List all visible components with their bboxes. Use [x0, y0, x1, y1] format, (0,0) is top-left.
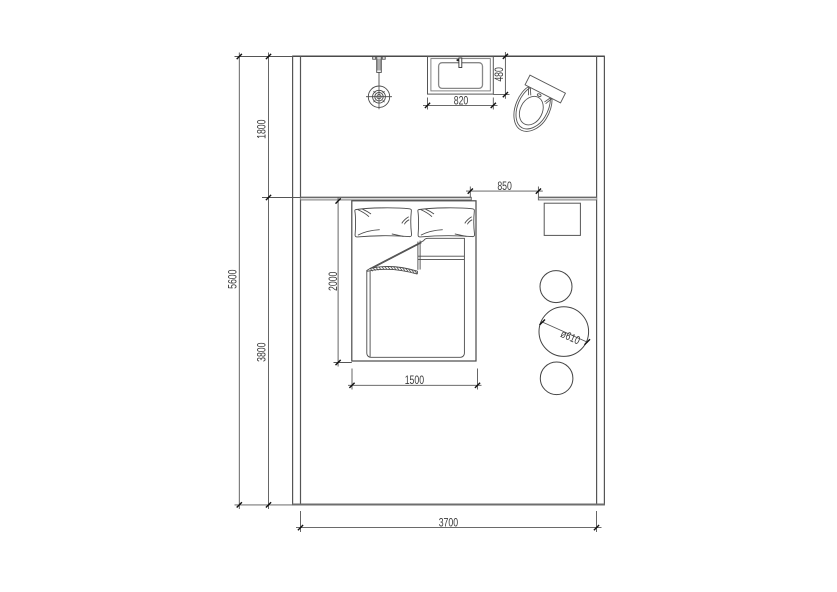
svg-text:1800: 1800	[256, 119, 268, 139]
svg-text:3800: 3800	[256, 342, 268, 362]
svg-text:480: 480	[494, 67, 506, 82]
svg-text:3700: 3700	[439, 517, 459, 529]
svg-text:2000: 2000	[328, 271, 340, 291]
svg-text:5600: 5600	[227, 269, 239, 289]
svg-text:850: 850	[497, 181, 512, 193]
svg-text:820: 820	[454, 95, 469, 107]
svg-text:1500: 1500	[405, 375, 425, 387]
